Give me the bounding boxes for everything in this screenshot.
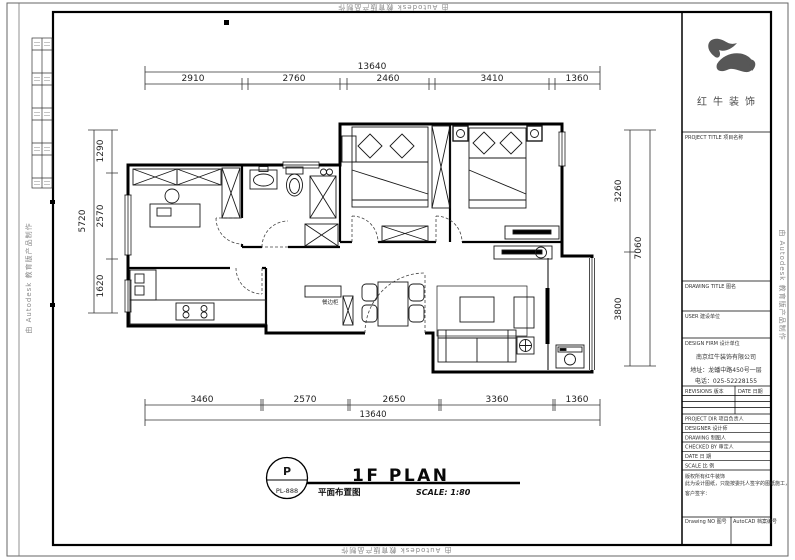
watermark-right: 由 Autodesk 教育版产品制作	[778, 229, 787, 340]
sideboard-cabinet	[305, 286, 341, 297]
bull-logo-icon	[708, 39, 755, 72]
floor-plan-drawing: 由 Autodesk 教育版产品制作 由 Autodesk 教育版产品制作 由 …	[0, 0, 795, 560]
watermark-top: 由 Autodesk 教育版产品制作	[337, 3, 448, 12]
bathroom-fixtures	[250, 167, 338, 247]
frame-mark	[50, 200, 55, 204]
plan-scale: SCALE: 1:80	[416, 488, 471, 497]
plant-table	[517, 337, 534, 354]
plan-title-en: 1F PLAN	[352, 466, 450, 486]
bed-2	[453, 126, 542, 208]
walls	[128, 124, 592, 372]
tb-row-label-1: DESIGNER 设计师	[685, 425, 728, 432]
wardrobe-bedroom1	[432, 126, 450, 208]
study-wardrobe	[133, 168, 240, 218]
washing-machine	[556, 345, 584, 368]
tb-company-phone: 电话：025-52228155	[695, 377, 757, 385]
desk-chair	[165, 189, 179, 203]
tb-project-title-label: PROJECT TITLE 项目名称	[685, 134, 743, 141]
brand-name: 红牛装饰	[697, 95, 761, 108]
sheet-mark-top: P	[283, 465, 291, 478]
tb-row-label-0: PROJECT DIR 项目负责人	[685, 416, 744, 423]
frame-mark	[224, 20, 229, 25]
tb-row-label-4: DATE 日 期	[685, 454, 711, 460]
stove	[176, 303, 214, 320]
dim-right-2: 3800	[614, 297, 624, 320]
tb-design-firm-label: DESIGN FIRM 设计单位	[685, 340, 740, 347]
tb-note-line1: 版权所有红牛装饰	[685, 473, 725, 480]
title-block: 红牛装饰 PROJECT TITLE 项目名称 DRAWING TITLE 图名…	[682, 12, 790, 545]
dim-bottom-2: 2570	[294, 395, 317, 405]
tb-company-address: 地址：龙蟠中路450号一层	[690, 366, 761, 374]
rug	[437, 286, 527, 336]
dim-top-total: 13640	[358, 62, 387, 72]
tb-drawing-no-label: Drawing NO 图号	[685, 519, 727, 525]
window-bedroom2-right	[559, 132, 566, 166]
dim-bottom-total: 13640	[359, 410, 386, 420]
dim-bottom-3: 2650	[383, 395, 406, 405]
dim-top-2: 2760	[283, 74, 306, 84]
tb-date-label: DATE 日期	[738, 389, 763, 395]
dim-left-1: 1290	[96, 139, 106, 162]
bedside-shelf	[342, 136, 356, 162]
watermark-bottom: 由 Autodesk 教育版产品制作	[340, 546, 451, 555]
fold-mark-strip	[32, 38, 52, 188]
dim-bottom-5: 1360	[566, 395, 589, 405]
kitchen-counter	[130, 270, 266, 324]
nightstand-right	[527, 126, 542, 141]
tv-cabinet-bedroom2	[505, 226, 559, 239]
window-study-left	[125, 195, 132, 255]
dim-top-4: 3410	[481, 74, 504, 84]
dim-right-total: 7060	[634, 236, 644, 259]
window-balcony	[589, 258, 596, 370]
frame-mark	[50, 303, 55, 307]
tb-client-sign: 客户签字：	[685, 490, 710, 497]
plan-title-cn: 平面布置图	[318, 487, 361, 498]
dim-left-total: 5720	[78, 209, 88, 232]
nightstand-left	[453, 126, 468, 141]
watermark-left: 由 Autodesk 教育版产品制作	[24, 222, 33, 333]
drawing-sheet: 由 Autodesk 教育版产品制作 由 Autodesk 教育版产品制作 由 …	[0, 0, 795, 560]
hall-pier	[343, 296, 353, 325]
tb-row-label-3: CHECKED BY 审定人	[685, 444, 734, 451]
low-cabinet-bedroom1	[382, 226, 428, 241]
sofa	[438, 330, 516, 362]
dim-top-3: 2460	[377, 74, 400, 84]
door-study	[216, 218, 242, 244]
coffee-table	[460, 297, 494, 322]
bed-1	[342, 127, 428, 207]
tb-row-label-2: DRAWING 制图人	[685, 434, 726, 441]
tb-revisions-label: REVISIONS 版本	[685, 388, 724, 395]
tb-row-label-5: SCALE 比 例	[685, 462, 714, 469]
furniture-label: 餐边柜	[322, 298, 339, 306]
door-kitchen	[236, 268, 262, 294]
dim-left-2: 2570	[96, 204, 106, 227]
study-desk	[150, 189, 200, 227]
sheet-title: P PL-888 1F PLAN 平面布置图 SCALE: 1:80	[267, 458, 521, 499]
door-bath	[262, 221, 288, 247]
dim-bottom-4: 3360	[486, 395, 509, 405]
tb-drawing-title-label: DRAWING TITLE 图名	[685, 283, 736, 290]
dim-top-5: 1360	[566, 74, 589, 84]
dim-right-1: 3260	[614, 179, 624, 202]
tb-note-line2: 此为设计图纸，只能按委托人签字的图纸施工，	[685, 480, 790, 487]
tb-file-no-label: AutoCAD 档案编号	[733, 518, 777, 525]
tb-user-label: USER 建设单位	[685, 313, 720, 320]
sheet-mark-bottom: PL-888	[276, 487, 298, 495]
dim-top-1: 2910	[182, 74, 205, 84]
dim-left-3: 1620	[96, 274, 106, 297]
door-bedroom1	[352, 216, 378, 242]
dining-table	[378, 282, 408, 326]
tv-console-living	[494, 246, 552, 259]
side-cabinet	[514, 297, 534, 328]
dining-set	[362, 282, 424, 326]
sliding-door	[546, 288, 550, 344]
dim-bottom-1: 3460	[191, 395, 214, 405]
tb-company-name: 南京红牛装饰有限公司	[696, 353, 756, 361]
